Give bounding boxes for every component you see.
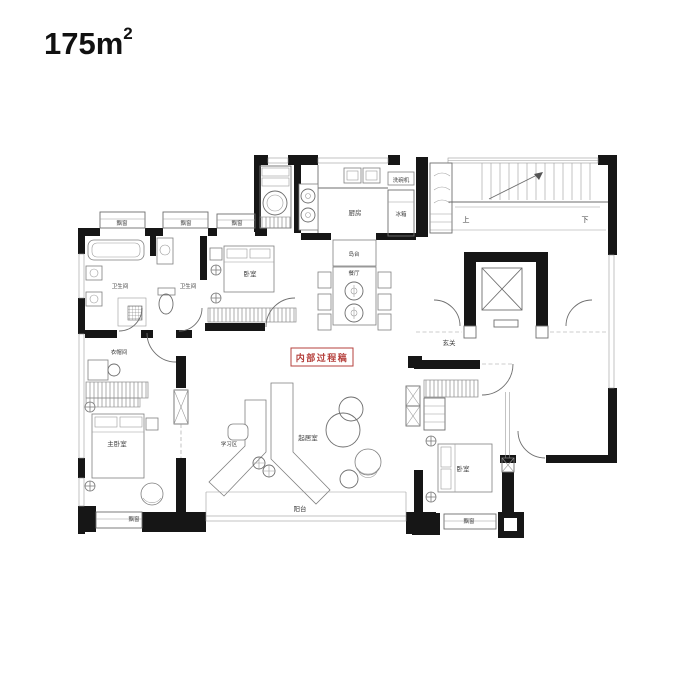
study-label: 学习区 [221,440,238,448]
stairs-down-label: 下 [582,216,589,224]
foyer-door-left [434,300,460,326]
dining-label: 餐厅 [348,269,360,277]
bathroom-right-door [179,308,202,331]
closet-label: 衣帽间 [111,348,128,356]
foyer-closet [430,163,452,233]
bay-window-label-2: 飘窗 [180,219,192,227]
washer-icon [263,191,287,215]
bay-window-label-3: 飘窗 [231,219,243,227]
watermark-stamp: 内部过程稿 [291,348,353,366]
laundry-area [260,166,291,228]
dishwasher-label: 洗碗机 [393,176,410,184]
bedroom-bottom-label: 卧室 [457,464,471,473]
foyer-door-right [566,300,592,326]
walls [78,155,617,538]
floor-plan-drawing: 厨房 洗碗机 冰箱 飘窗 飘窗 飘窗 卫生间 卫生间 卧室 岛台 餐厅 上 下 … [0,0,697,695]
stairs-up-label: 上 [463,215,470,224]
bay-window-label-4: 飘窗 [128,515,140,523]
fridge-label: 冰箱 [395,210,407,218]
bedroom-bottom-door [482,364,513,395]
living-study-area [206,383,406,516]
island-label: 岛台 [348,250,360,258]
floor-plan-page: 175m2 [0,0,697,695]
windows [79,158,614,529]
bay-window-label-1: 飘窗 [116,219,128,227]
foyer-label: 玄关 [443,338,457,347]
bathroom-left-label: 卫生间 [112,282,129,290]
master-suite-area [85,333,188,505]
kitchen-area [299,165,414,236]
watermark-text: 内部过程稿 [296,352,349,363]
bedroom-top-label: 卧室 [244,269,258,278]
master-bedroom-label: 主卧室 [107,439,127,448]
living-room-label: 起居室 [298,433,318,442]
bedroom-top-area [208,246,296,327]
entry-door [518,431,545,458]
kitchen-label: 厨房 [349,208,362,217]
balcony-label: 阳台 [294,504,307,513]
bay-window-label-5: 飘窗 [463,517,475,525]
bathroom-right-label: 卫生间 [180,282,197,290]
